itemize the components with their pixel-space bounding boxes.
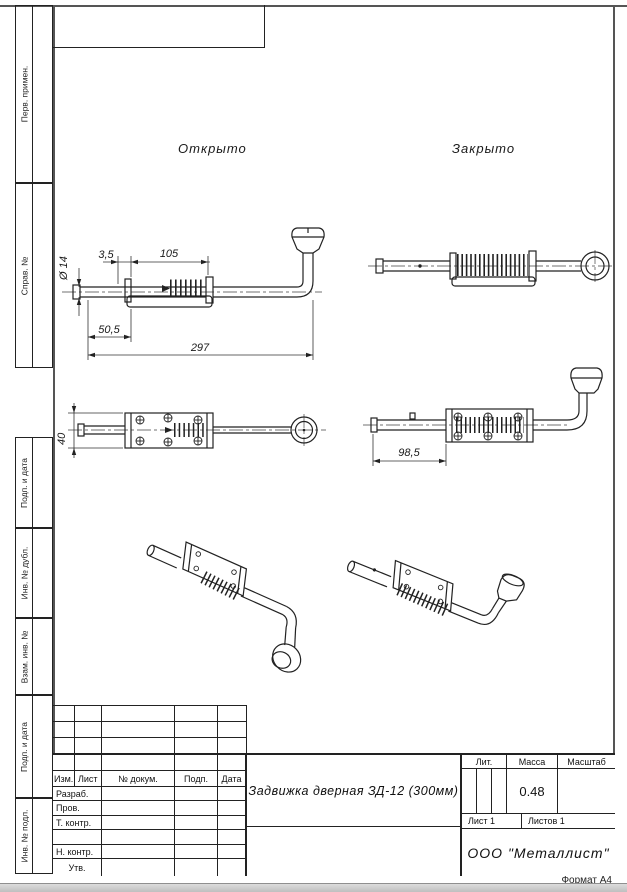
company-name: ООО "Металлист" xyxy=(462,829,615,876)
col-podp: Подп. xyxy=(175,771,218,787)
massa-value: 0.48 xyxy=(507,769,558,814)
margin-box-inv-podl: Инв. № подл. xyxy=(15,798,53,874)
lit-cell-2 xyxy=(477,769,492,814)
role-tkontr: Т. контр. xyxy=(53,816,102,830)
margin-label: Справ. № xyxy=(19,256,29,295)
col-list: Лист xyxy=(75,771,102,787)
margin-box-perv-primen: Перв. примен. xyxy=(15,5,53,183)
role-empty xyxy=(53,830,102,845)
top-stamp-box xyxy=(53,5,265,48)
role-nkontr: Н. контр. xyxy=(53,845,102,859)
masshtab-header: Масштаб xyxy=(558,755,615,769)
margin-label: Инв. № дубл. xyxy=(19,547,29,600)
lit-cell-1 xyxy=(462,769,477,814)
margin-label: Взам. инв. № xyxy=(19,630,29,683)
margin-label: Перв. примен. xyxy=(19,66,29,123)
margin-label: Подп. и дата xyxy=(19,721,29,771)
sheet-number: Лист 1 xyxy=(462,814,522,829)
role-razrab: Разраб. xyxy=(53,787,102,801)
margin-box-inv-dubl: Инв. № дубл. xyxy=(15,528,53,618)
role-prov: Пров. xyxy=(53,801,102,816)
lit-cell-3 xyxy=(492,769,507,814)
view-label-open: Открыто xyxy=(178,141,247,156)
drawing-sheet: 3,5 105 Ø 14 50,5 297 xyxy=(0,0,627,892)
window-bottom-edge xyxy=(0,883,627,892)
col-doc: № докум. xyxy=(102,771,175,787)
margin-label: Инв. № подл. xyxy=(19,810,29,863)
margin-box-sprav-no: Справ. № xyxy=(15,183,53,368)
masshtab-value xyxy=(558,769,615,814)
document-title: Задвижка дверная ЗД-12 (300мм) xyxy=(247,755,462,827)
lit-header: Лит. xyxy=(462,755,507,769)
margin-box-vzam-inv: Взам. инв. № xyxy=(15,618,53,695)
revision-grid xyxy=(53,705,247,753)
margin-label: Подп. и дата xyxy=(19,457,29,507)
margin-box-podp-data-1: Подп. и дата xyxy=(15,437,53,528)
role-utv: Утв. xyxy=(53,859,102,876)
col-data: Дата xyxy=(218,771,247,787)
col-izm: Изм. xyxy=(53,771,75,787)
title-block: Изм. Лист № докум. Подп. Дата Разраб. Пр… xyxy=(53,753,615,874)
sheets-total: Листов 1 xyxy=(522,814,615,829)
margin-box-podp-data-2: Подп. и дата xyxy=(15,695,53,798)
massa-header: Масса xyxy=(507,755,558,769)
view-label-closed: Закрыто xyxy=(452,141,515,156)
